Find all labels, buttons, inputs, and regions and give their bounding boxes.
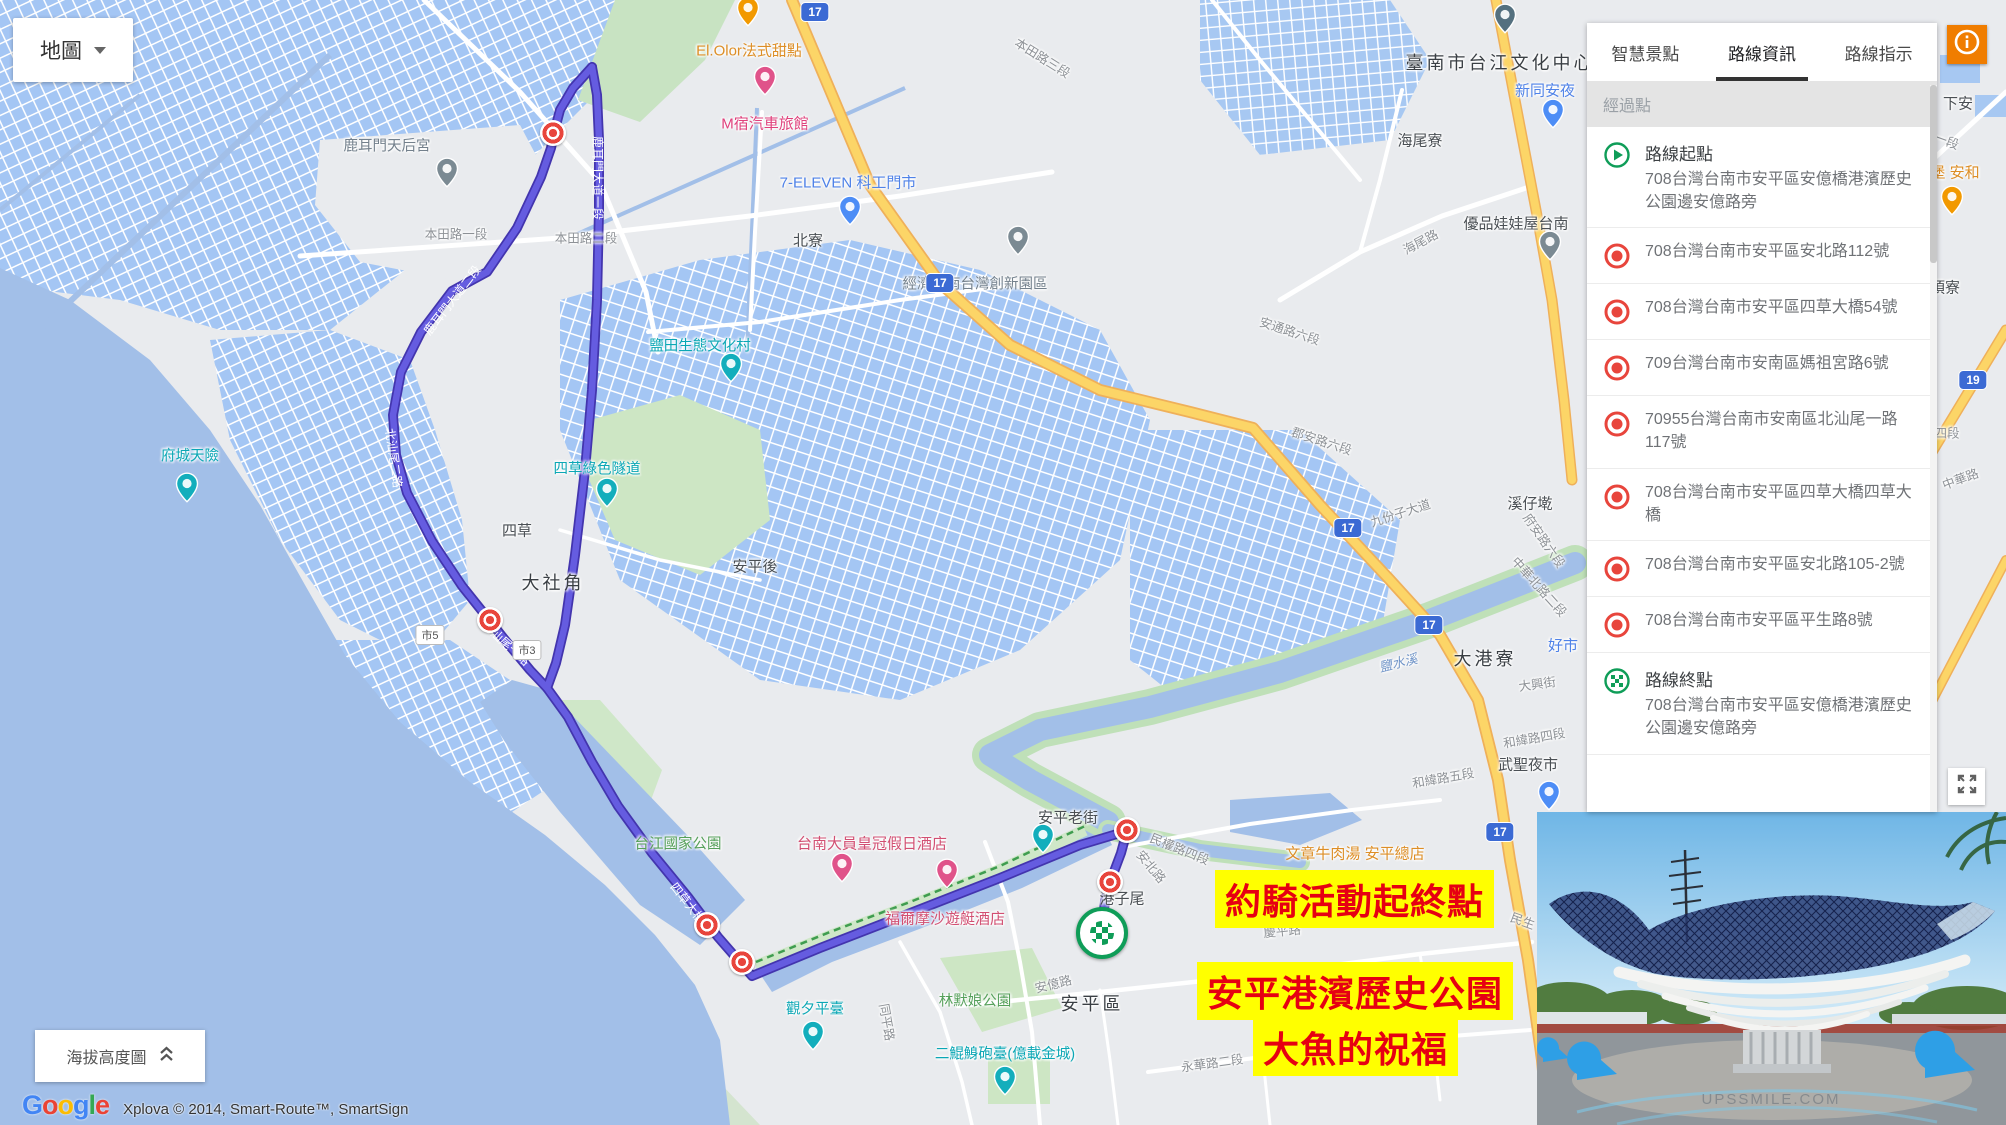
attribution: Google Xplova © 2014, Smart-Route™, Smar…: [22, 1090, 408, 1121]
road-shield: 17: [925, 273, 954, 293]
road-shield: 19: [1958, 370, 1987, 390]
restaurant-pin[interactable]: [1941, 185, 1964, 221]
place-pin[interactable]: [1539, 230, 1562, 266]
camera-pin[interactable]: [176, 472, 199, 508]
camera-pin[interactable]: [720, 352, 743, 388]
map-app: 鹿耳門天后宮El.Olor法式甜點M宿汽車旅館7-ELEVEN 科工門市北寮經濟…: [0, 0, 2006, 1125]
waypoint-address: 708台灣台南市安平區四草大橋四草大橋: [1645, 482, 1913, 527]
tab-route-info[interactable]: 路線資訊: [1704, 23, 1821, 81]
waypoint-list-item[interactable]: 708台灣台南市安平區四草大橋54號: [1587, 284, 1937, 340]
map-label: 文章牛肉湯 安平總店: [1285, 843, 1424, 864]
map-label: 四草綠色隧道: [554, 458, 641, 479]
waypoint-list-item[interactable]: 路線終點708台灣台南市安平區安億橋港濱歷史公園邊安億路旁: [1587, 653, 1937, 754]
map-label: 海尾寮: [1397, 130, 1442, 151]
route-waypoint-marker[interactable]: [1097, 869, 1123, 895]
map-label: 7-ELEVEN 科工門市: [780, 172, 917, 193]
place-pin[interactable]: [1007, 225, 1030, 261]
tab-smart-spots[interactable]: 智慧景點: [1587, 23, 1704, 81]
info-icon: [1954, 29, 1980, 60]
map-label: 二鯤鯓砲臺(億載金城): [935, 1043, 1075, 1064]
waypoint-title: 路線起點: [1645, 140, 1913, 165]
shopping-pin[interactable]: [1542, 98, 1565, 134]
elevation-label: 海拔高度圖: [66, 1044, 146, 1068]
castle-pin[interactable]: [994, 1065, 1017, 1101]
waypoint-list-item[interactable]: 路線起點708台灣台南市安平區安億橋港濱歷史公園邊安億路旁: [1587, 127, 1937, 228]
store-pin[interactable]: [839, 195, 862, 231]
waypoints-header: 經過點: [1587, 81, 1937, 127]
route-endpoint-marker[interactable]: [1076, 907, 1128, 959]
waypoint-target-icon: [1603, 242, 1631, 270]
camera-pin[interactable]: [802, 1020, 825, 1056]
waypoint-list-item[interactable]: 708台灣台南市安平區安北路112號: [1587, 228, 1937, 284]
restaurant-pin[interactable]: [737, 0, 760, 32]
waypoint-list: 路線起點708台灣台南市安平區安億橋港濱歷史公園邊安億路旁708台灣台南市安平區…: [1587, 127, 1937, 812]
photo-watermark: UPSSMILE.COM: [1701, 1091, 1840, 1108]
waypoint-target-icon: [1603, 410, 1631, 438]
hotel-pin[interactable]: [831, 852, 854, 888]
map-label: 下安: [1943, 93, 1973, 114]
waypoint-address: 70955台灣台南市安南區北汕尾一路117號: [1645, 409, 1913, 454]
waypoint-target-icon: [1603, 354, 1631, 382]
waypoint-target-icon: [1603, 298, 1631, 326]
hotel-pin[interactable]: [754, 65, 777, 101]
hotel-pin[interactable]: [936, 858, 959, 894]
panel-tabs: 智慧景點 路線資訊 路線指示: [1587, 23, 1937, 81]
route-waypoint-marker[interactable]: [694, 912, 720, 938]
map-type-label: 地圖: [40, 35, 82, 65]
map-label: 堡 安和: [1930, 162, 1979, 183]
waypoint-list-item[interactable]: 708台灣台南市安平區平生路8號: [1587, 597, 1937, 653]
map-label: 台南大員皇冠假日酒店: [797, 833, 947, 854]
route-start-icon: [1603, 141, 1631, 169]
map-label: 台江國家公園: [635, 833, 722, 854]
waypoint-title: 路線終點: [1645, 666, 1913, 691]
waypoint-address: 709台灣台南市安南區媽祖宮路6號: [1645, 353, 1913, 376]
shopping-pin[interactable]: [1538, 780, 1561, 816]
map-label: 臺南市台江文化中心: [1406, 49, 1595, 75]
elevation-chart-toggle[interactable]: 海拔高度圖: [35, 1030, 205, 1082]
waypoint-list-item[interactable]: 708台灣台南市安平區安北路105-2號: [1587, 541, 1937, 597]
map-label: 本田路二段: [555, 228, 618, 247]
road-shield: 17: [1333, 518, 1362, 538]
map-label: 安平區: [1061, 990, 1124, 1016]
waypoint-address: 708台灣台南市安平區安億橋港濱歷史公園邊安億路旁: [1645, 695, 1913, 740]
school-pin[interactable]: [1494, 3, 1517, 39]
annotation-park-name: 安平港濱歷史公園: [1197, 962, 1513, 1020]
waypoint-address: 708台灣台南市安平區四草大橋54號: [1645, 297, 1913, 320]
waypoint-list-item[interactable]: 708台灣台南市安平區四草大橋四草大橋: [1587, 469, 1937, 541]
route-waypoint-marker[interactable]: [477, 607, 503, 633]
road-shield: 17: [1414, 615, 1443, 635]
map-label: 好市: [1548, 635, 1578, 656]
google-logo[interactable]: Google: [22, 1090, 109, 1121]
chevron-double-up-icon: [159, 1046, 174, 1067]
map-label: 大港寮: [1454, 645, 1517, 671]
map-label: 林默娘公園: [939, 990, 1012, 1011]
waypoint-address: 708台灣台南市安平區平生路8號: [1645, 610, 1913, 633]
road-shield: 17: [800, 2, 829, 22]
map-label: 北寮: [793, 230, 823, 251]
waypoint-address: 708台灣台南市安平區安北路112號: [1645, 241, 1913, 264]
route-waypoint-marker[interactable]: [1114, 817, 1140, 843]
map-label: 溪仔墘: [1507, 493, 1552, 514]
waypoint-target-icon: [1603, 483, 1631, 511]
photo-inset-big-fish: UPSSMILE.COM: [1537, 812, 2006, 1125]
road-shield: 17: [1485, 822, 1514, 842]
waypoint-address: 708台灣台南市安平區安北路105-2號: [1645, 554, 1913, 577]
annotation-ride-start-end: 約騎活動起終點: [1215, 870, 1494, 928]
map-label: 安平後: [732, 556, 777, 577]
info-button[interactable]: [1947, 25, 1987, 64]
map-label: 四段: [1934, 423, 1959, 442]
route-waypoint-marker[interactable]: [729, 949, 755, 975]
map-label: 武聖夜市: [1498, 754, 1558, 775]
map-label: M宿汽車旅館: [721, 113, 809, 134]
fullscreen-icon: [1956, 773, 1978, 800]
map-label: 觀夕平臺: [786, 998, 844, 1019]
temple-pin[interactable]: [436, 157, 459, 193]
attribution-text: Xplova © 2014, Smart-Route™, SmartSign: [123, 1101, 408, 1118]
waypoint-target-icon: [1603, 611, 1631, 639]
route-waypoint-marker[interactable]: [540, 120, 566, 146]
map-label: 福爾摩沙遊艇酒店: [885, 908, 1005, 929]
waypoint-address: 708台灣台南市安平區安億橋港濱歷史公園邊安億路旁: [1645, 169, 1913, 214]
map-label: 經濟部南台灣創新園區: [903, 273, 1048, 294]
map-label: 鹿耳門天后宮: [344, 135, 431, 156]
chevron-down-icon: [94, 47, 106, 54]
road-shield: 市3: [512, 640, 541, 660]
camera-pin[interactable]: [596, 477, 619, 513]
waypoint-list-item[interactable]: 709台灣台南市安南區媽祖宮路6號: [1587, 340, 1937, 396]
tab-route-directions[interactable]: 路線指示: [1820, 23, 1937, 81]
map-label: 府城天險: [161, 445, 219, 466]
map-label: 本田路一段: [425, 224, 488, 243]
road-shield: 市5: [415, 625, 444, 645]
map-label: 大社角: [522, 569, 585, 595]
map-type-dropdown[interactable]: 地圖: [13, 18, 133, 82]
annotation-fish-name: 大魚的祝福: [1253, 1018, 1458, 1076]
camera-pin[interactable]: [1032, 823, 1055, 859]
map-label: El.Olor法式甜點: [696, 40, 802, 61]
waypoint-target-icon: [1603, 555, 1631, 583]
panel-scrollbar[interactable]: [1930, 85, 1937, 812]
waypoint-list-item[interactable]: 70955台灣台南市安南區北汕尾一路117號: [1587, 396, 1937, 468]
route-end-icon: [1603, 667, 1631, 695]
route-info-panel: 智慧景點 路線資訊 路線指示 經過點 路線起點708台灣台南市安平區安億橋港濱歷…: [1587, 23, 1937, 812]
map-label: 鹿耳門大道一段: [590, 136, 607, 220]
fullscreen-button[interactable]: [1948, 768, 1985, 805]
map-label: 四草: [502, 520, 532, 541]
